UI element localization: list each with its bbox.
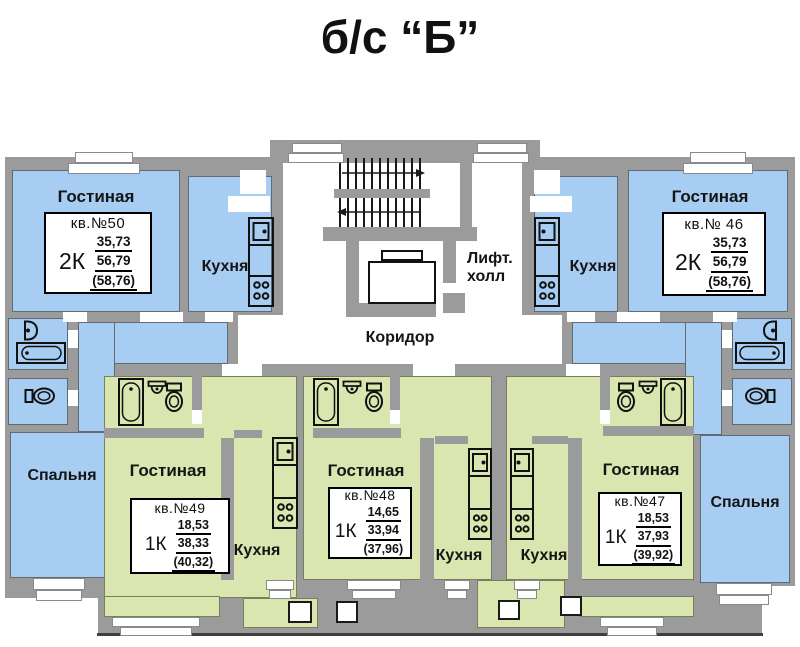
apt46-sink-icon bbox=[762, 320, 781, 341]
apt48-sink-icon bbox=[342, 380, 362, 396]
apt47-type: 1К bbox=[605, 527, 627, 549]
staircase-icon bbox=[334, 158, 430, 230]
apt49-bathtub-icon bbox=[118, 378, 144, 426]
apt49-area-living: 18,53 bbox=[176, 517, 211, 535]
apt46-kitchen-label: Кухня bbox=[570, 258, 617, 276]
apt47-bath-door bbox=[600, 410, 610, 424]
apt50-living-window-inner bbox=[68, 163, 140, 174]
apt46-kitchen-sill bbox=[530, 196, 572, 212]
apt48-bath-wall-right bbox=[390, 376, 400, 414]
apt50-number: кв.№50 bbox=[71, 215, 125, 232]
apt50-area-full: (58,76) bbox=[90, 272, 137, 292]
apt50-living-label: Гостиная bbox=[58, 187, 135, 207]
apt46-bedroom-window-inner bbox=[716, 583, 772, 595]
apt46-living-door-a bbox=[713, 312, 737, 322]
apt50-area-total: 56,79 bbox=[95, 252, 133, 272]
apt49-living-window-outer bbox=[120, 627, 192, 636]
apt47-toilet-icon bbox=[615, 382, 637, 414]
apt47-bath-wall-bottom bbox=[603, 426, 694, 436]
apt46-area-total: 56,79 bbox=[711, 253, 749, 273]
apt50-bedroom bbox=[10, 432, 114, 578]
apt50-living-door-b bbox=[140, 312, 183, 322]
apt48-living-window-inner bbox=[347, 580, 401, 590]
apt49-kitchen-window-inner bbox=[266, 580, 294, 590]
apt47-area-living: 18,53 bbox=[636, 510, 671, 528]
apt48-area-total: 33,94 bbox=[366, 522, 401, 540]
apt47-number: кв.№47 bbox=[614, 493, 665, 509]
apt48-kitchen-window-inner bbox=[444, 580, 470, 590]
apt49-living-label: Гостиная bbox=[130, 461, 207, 481]
vent-shaft-3 bbox=[498, 600, 520, 620]
apt50-living-door-a bbox=[63, 312, 87, 322]
apt49-info-box: кв.№49 1К 18,53 38,33 (40,32) bbox=[130, 498, 230, 574]
apt48-bathtub-icon bbox=[313, 378, 339, 426]
elevator-car-door bbox=[381, 250, 423, 261]
apt48-bath-door bbox=[390, 410, 400, 424]
stair-separator-wall bbox=[460, 163, 472, 227]
apt50-bathtub-icon bbox=[16, 342, 66, 364]
apt49-living-window-inner bbox=[112, 617, 200, 627]
apt50-type: 2К bbox=[59, 248, 85, 275]
apt49-number: кв.№49 bbox=[154, 500, 205, 516]
apt49-bath-wall-bottom bbox=[104, 428, 204, 438]
apt50-kitchen-label: Кухня bbox=[202, 258, 249, 276]
elevator-wall-bottom bbox=[348, 303, 436, 317]
apt50-info-box: кв.№50 2К 35,73 56,79 (58,76) bbox=[44, 212, 152, 294]
apt49-kitchen-wall-top bbox=[234, 430, 262, 438]
stairwell-window-right-outer bbox=[477, 143, 527, 153]
apt47-kitchen-window-inner bbox=[514, 580, 540, 590]
building-shadow bbox=[97, 633, 763, 636]
apt50-bath-door bbox=[68, 330, 78, 348]
apt50-bedroom-label: Спальня bbox=[27, 467, 96, 485]
apt46-kitchen-door bbox=[567, 312, 595, 322]
apt50-bedroom-window-inner bbox=[33, 578, 85, 590]
apt46-living-window-inner bbox=[683, 163, 753, 174]
corridor-label: Коридор bbox=[366, 329, 435, 347]
apt48-living-window-outer bbox=[352, 590, 396, 599]
apt47-living-wall-left bbox=[568, 438, 582, 580]
apt49-bath-wall-right bbox=[192, 376, 202, 414]
vent-shaft-2 bbox=[336, 601, 358, 623]
apt49-entrance-door bbox=[222, 364, 262, 376]
apt48-number: кв.№48 bbox=[344, 487, 395, 503]
apt47-living-window-outer bbox=[607, 627, 657, 636]
apt47-kitchen-window-outer bbox=[517, 590, 537, 599]
apt47-kitchen-counter bbox=[510, 448, 534, 540]
apt48-living-label: Гостиная bbox=[328, 461, 405, 481]
elevator-wall-step bbox=[443, 293, 465, 313]
apt46-bathtub-icon bbox=[735, 342, 785, 364]
apt50-kitchen-counter bbox=[248, 217, 274, 307]
apt47-sink-icon bbox=[638, 380, 658, 396]
apt50-sink-icon bbox=[20, 320, 39, 341]
apt46-wc-door bbox=[722, 390, 732, 406]
floor-plan: б/с “Б” bbox=[0, 0, 800, 647]
apt48-kitchen-counter bbox=[468, 448, 492, 540]
apt46-info-box: кв.№ 46 2К 35,73 56,79 (58,76) bbox=[662, 212, 766, 296]
apt49-kitchen-label: Кухня bbox=[234, 542, 281, 560]
apt46-number: кв.№ 46 bbox=[684, 216, 743, 233]
apt47-bath-wall-left bbox=[600, 376, 610, 414]
apt48-area-living: 14,65 bbox=[366, 504, 401, 522]
apt50-wc-door bbox=[68, 390, 78, 406]
apt50-kitchen-door bbox=[205, 312, 233, 322]
apt47-area-full: (39,92) bbox=[632, 547, 676, 565]
apt46-living-label: Гостиная bbox=[672, 187, 749, 207]
apt48-info-box: кв.№48 1К 14,65 33,94 (37,96) bbox=[328, 487, 412, 559]
notch-bottom-left bbox=[5, 598, 98, 634]
apt50-kitchen-shaft bbox=[240, 170, 266, 194]
apt48-bath-wall-bottom bbox=[313, 428, 401, 438]
apt48-toilet-icon bbox=[363, 382, 385, 414]
page-title: б/с “Б” bbox=[0, 10, 800, 64]
apt49-area-full: (40,32) bbox=[172, 554, 216, 572]
vent-shaft-1 bbox=[288, 601, 312, 623]
stairwell-window-left-inner bbox=[288, 153, 344, 163]
stairwell-window-left-outer bbox=[292, 143, 342, 153]
apt47-kitchen-wall-top bbox=[532, 436, 568, 444]
apt48-kitchen-label: Кухня bbox=[436, 547, 483, 565]
apt46-area-living: 35,73 bbox=[711, 234, 749, 254]
apt46-toilet-icon bbox=[744, 386, 776, 406]
apt50-area-living: 35,73 bbox=[95, 233, 133, 253]
apt46-area-full: (58,76) bbox=[706, 273, 753, 293]
apt46-living-door-b bbox=[617, 312, 660, 322]
vent-shaft-4 bbox=[560, 596, 582, 616]
apt48-type: 1К bbox=[335, 521, 357, 543]
apt47-living-label: Гостиная bbox=[603, 460, 680, 480]
corridor-wall-left-b bbox=[228, 345, 238, 364]
apt47-info-box: кв.№47 1К 18,53 37,93 (39,92) bbox=[598, 492, 682, 566]
apt50-bedroom-window-outer bbox=[36, 590, 82, 601]
apt47-living-tab bbox=[580, 596, 694, 617]
elevator-car bbox=[368, 261, 436, 304]
apt49-bath-door bbox=[192, 410, 202, 424]
elevator-wall-top bbox=[323, 227, 477, 241]
apt48-area-full: (37,96) bbox=[362, 541, 406, 559]
apt47-living-window-inner bbox=[600, 617, 664, 627]
kitchens-divider-wall bbox=[492, 438, 506, 580]
apt46-bath-door bbox=[722, 330, 732, 348]
apt48-kitchen-wall-top bbox=[435, 436, 468, 444]
apt46-bedroom-label: Спальня bbox=[710, 494, 779, 512]
corridor-wall-right-b bbox=[562, 345, 572, 364]
staircase bbox=[334, 158, 430, 230]
apt47-bathtub-icon bbox=[660, 378, 686, 426]
apt47-kitchen-label: Кухня bbox=[521, 547, 568, 565]
apt46-kitchen-shaft bbox=[534, 170, 560, 194]
apt50-living-window-outer bbox=[75, 152, 133, 163]
lift-hall-label: Лифт. холл bbox=[467, 250, 513, 287]
apt49-kitchen-window-outer bbox=[269, 590, 291, 599]
apt46-bedroom-window-outer bbox=[719, 595, 769, 605]
elevator-wall-right bbox=[443, 241, 456, 283]
apt50-kitchen-sill bbox=[228, 196, 270, 212]
apt47-entrance-door bbox=[566, 364, 600, 376]
apt49-toilet-icon bbox=[163, 382, 185, 414]
apt48-living-wall-right bbox=[420, 438, 434, 580]
apt49-area-total: 38,33 bbox=[176, 535, 211, 553]
apt46-living-window-outer bbox=[690, 152, 746, 163]
apt48-kitchen-window-outer bbox=[447, 590, 467, 599]
apt50-toilet-icon bbox=[24, 386, 56, 406]
apt46-kitchen-counter bbox=[534, 217, 560, 307]
apt49-type: 1К bbox=[145, 534, 167, 556]
stairwell-window-right-inner bbox=[473, 153, 529, 163]
apt49-kitchen-counter bbox=[272, 437, 298, 529]
apt48-entrance-door bbox=[413, 364, 455, 376]
apt47-area-total: 37,93 bbox=[636, 528, 671, 546]
apt46-type: 2К bbox=[675, 249, 701, 276]
apt49-living-tab bbox=[104, 596, 220, 617]
